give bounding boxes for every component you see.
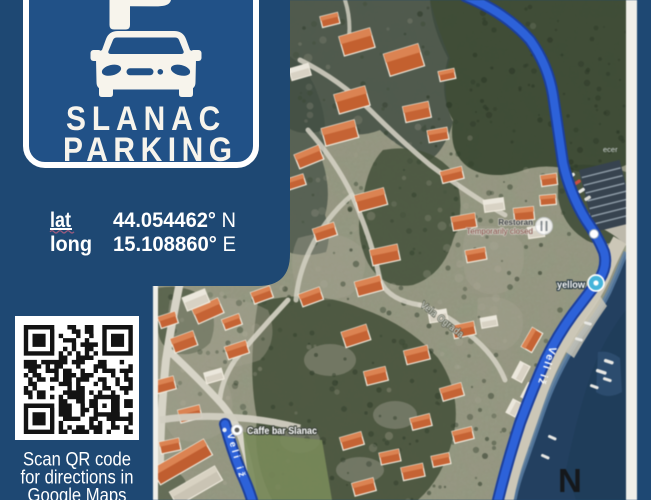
svg-text:long: long	[50, 232, 92, 256]
svg-text:44.054462° N: 44.054462° N	[113, 208, 236, 232]
svg-text:Google Maps: Google Maps	[28, 485, 127, 500]
svg-text:PARKING: PARKING	[63, 130, 238, 168]
svg-text:15.108860° E: 15.108860° E	[113, 232, 236, 256]
